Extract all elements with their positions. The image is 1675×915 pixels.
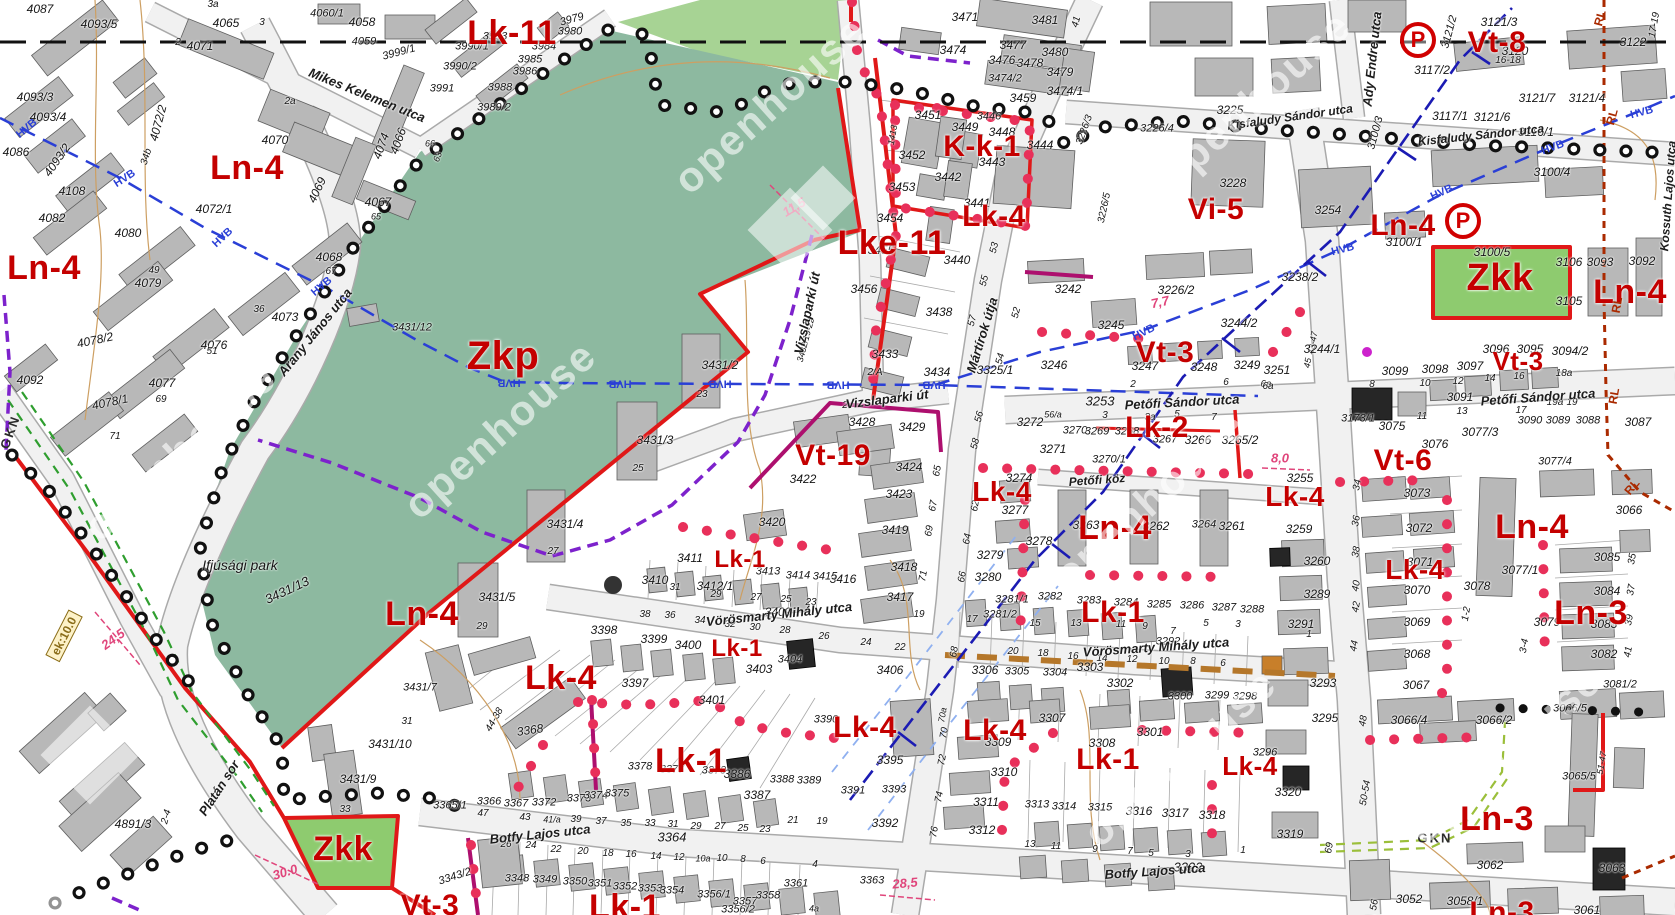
parcel-number: 29 [476,622,487,632]
parcel-number: 3279 [977,549,1004,561]
parcel-number: 3424 [896,461,923,473]
measurement-label: 24,5 [99,626,127,651]
parcel-number: 3401 [699,694,726,706]
parcel-number: 4072/1 [196,203,233,215]
parcel-number: 3121/2 [1440,14,1459,49]
parcel-number: 13 [1070,619,1081,629]
parcel-number: 3429 [899,421,926,433]
parcel-number: 3077/3 [1462,426,1499,438]
parcel-number: 31 [401,717,412,727]
parcel-number: 4891/3 [115,818,152,830]
parcel-number: 3387 [744,789,771,801]
parcel-number: 3270 [1063,426,1087,437]
parcel-number: 3077/1 [1502,564,1539,576]
parcel-number: 18a [1556,369,1573,379]
parcel-number: 3431/3 [637,434,674,446]
parcel-number: 68 [949,646,961,659]
parcel-number: 3444 [1027,139,1054,151]
zone-label: K-k-1 [943,132,1021,162]
parcel-number: 3372 [532,798,556,809]
parcel-number: 3388 [770,775,794,786]
parcel-number: 42 [1351,601,1363,614]
parcel-number: 3288 [1240,605,1264,616]
parcel-number: 41 [1071,15,1084,28]
parcel-number: 3477 [1000,39,1027,51]
zone-label: Vt-3 [1136,338,1195,368]
parcel-number: 25 [632,464,643,474]
parcel-number: 3245 [1098,319,1125,331]
parcel-number: 58 [970,437,983,450]
parcel-number: 66 [957,571,969,584]
parcel-number: 34 [694,616,705,626]
zone-label: Lk-1 [1081,598,1145,628]
utility-rl-label: RL [1610,296,1625,314]
parcel-number: 71 [109,432,120,442]
parcel-number: 3242 [1055,283,1082,295]
zone-label: Lk-1 [714,548,765,572]
zone-label: Lk-4 [1265,483,1325,511]
parcel-number: 3363 [860,876,884,887]
parcel-number: 4093/3 [17,91,54,103]
parcel-number: 3357 [733,897,757,908]
parcel-number: 3365/1 [433,801,467,812]
parcel-number: 4071 [187,40,214,52]
parcel-number: 11 [1051,842,1061,852]
parcel-number: 3286 [1180,601,1204,612]
parcel-number: 2a [284,97,295,107]
parcel-number: 3471 [952,11,979,23]
zone-label: Lk-4 [1385,556,1445,584]
parcel-number: 3991 [430,84,454,95]
parcel-number: 3261 [1219,520,1246,532]
parcel-number: 35 [1627,553,1639,566]
parcel-number: 3325/1 [977,364,1014,376]
parcel-number: 4079 [135,277,162,289]
zone-label: Ln-4 [385,597,459,631]
parcel-number: 22 [894,643,905,653]
parcel-number: 3420 [759,516,786,528]
parcel-number: 27 [547,547,558,557]
zone-label: Lke-11 [838,226,947,260]
parcel-number: 3085 [1594,551,1621,563]
parcel-number: 3400 [675,639,702,651]
parcel-number: 3078 [1464,580,1491,592]
utility-hvb-label: HVB [1330,242,1355,259]
parcel-number: 3434 [924,366,951,378]
parcel-number: 28 [779,626,790,636]
parcel-number: 56/a [1044,411,1062,420]
parcel-number: 3067 [1403,679,1430,691]
zone-label: Vt-3 [1492,348,1543,374]
parcel-number: 3062 [1477,859,1504,871]
parcel-number: 3097 [1457,360,1484,372]
parcel-number: 3069 [1404,616,1431,628]
parcel-number: 3075 [1379,420,1406,432]
zone-label: Zkp [467,336,540,376]
street-name: Botfy Lajos utca [489,822,591,845]
parcel-number: 13 [1456,407,1467,417]
utility-hvb-label: HVB [826,379,849,390]
parcel-number: 1-2 [1461,606,1473,622]
parcel-number: 4060/1 [310,9,344,20]
measurement-label: 7,7 [1150,294,1170,310]
parcel-number: 3238/2 [1282,271,1319,283]
parcel-number: 6 [1223,378,1229,388]
parcel-number: 3399 [641,633,668,645]
parcel-number: 3089 [1546,416,1570,427]
parcel-number: 3415 [813,572,837,583]
parcel-number: 34b [140,148,155,167]
parcel-number: 3364 [658,831,687,844]
parcel-number: 3317 [1162,807,1189,819]
parcel-number: 3070 [1404,584,1431,596]
street-name: Kossuth Lajos utca [1658,140,1675,251]
parcel-number: 3397 [622,677,649,689]
parcel-number: 3065/5 [1562,772,1596,783]
utility-hvb-label: HVB [708,378,731,389]
parcel-number: 66 [425,140,435,149]
parcel-number: 4093/2 [42,142,73,179]
parcel-number: 3391 [841,786,865,797]
street-name: Platán sor [196,758,241,818]
parcel-number: 3451 [915,109,942,121]
parcel-number: 70a [937,707,948,723]
parcel-number: 27 [714,822,725,832]
parcel-number: 3087 [1625,416,1652,428]
parcel-number: 3244/1 [1304,343,1341,355]
parcel-number: 4082 [39,212,66,224]
parcel-number: 3304 [1043,668,1067,679]
parcel-number: 3406 [877,664,904,676]
parcel-number: 3478 [1017,57,1044,69]
parcel-number: 3431/10 [368,738,411,750]
parking-symbol: P [1400,22,1436,58]
zone-label: Zkk [313,832,373,866]
map-labels-layer: 40874093/540653407123a40584060/140593999… [0,0,1675,915]
parcel-number: 3312 [969,824,996,836]
parcel-number: 41 [1623,646,1635,659]
parcel-number: 69 [1324,842,1336,855]
parcel-number: 40 [1351,580,1363,593]
parcel-number: 3431/5 [479,591,516,603]
parcel-number: 3a [207,0,218,10]
parcel-number: 76 [929,826,941,839]
zone-label: Vt-8 [1468,28,1527,58]
parcel-number: 4093/5 [81,18,118,30]
parcel-number: 3270/1 [1092,455,1126,466]
parcel-number: 3474 [940,44,967,56]
parcel-number: 3476 [989,54,1016,66]
parcel-number: 3253 [1086,395,1115,408]
parcel-number: 3319 [1277,828,1304,840]
parcel-number: 10 [716,854,727,864]
parcel-number: 3313 [1025,800,1049,811]
watermark-logo [0,873,82,915]
parcel-number: 16 [625,850,636,860]
utility-hvb-label: HVB [1540,139,1566,157]
parcel-number: 3306 [972,664,999,676]
zone-label: Ln-3 [1469,898,1534,915]
parcel-number: 33 [644,819,655,829]
parcel-number: 19 [913,610,924,620]
street-name: Kisfaludy Sándor utca [1417,122,1544,147]
parcel-number: 3419 [882,524,909,536]
parcel-number: 8 [740,855,746,865]
zone-label: Lk-4 [833,713,897,743]
parcel-number: 3418 [891,561,918,573]
parcel-number: 3280 [975,571,1002,583]
parcel-number: 12 [673,853,684,863]
parcel-number: 20 [577,847,588,857]
parcel-number: 3 [1102,411,1108,421]
utility-hvb-label: HVB [1629,105,1654,122]
parcel-number: 3989/2 [477,103,511,114]
parcel-number: 3305 [1005,667,1029,678]
parcel-number: 33 [339,805,350,815]
parcel-number: 67 [928,500,940,513]
parcel-number: 3300 [1168,692,1192,703]
parcel-number: 3269 [1085,427,1109,438]
parcel-number: 65 [932,465,944,478]
parcel-number: 8 [1369,380,1375,390]
utility-hvb-label: HVB [211,226,235,250]
parcel-number: 29 [710,590,721,600]
parcel-number: 3301 [1137,726,1164,738]
parcel-number: 17 [966,615,977,625]
parcel-number: 4a [809,905,819,914]
parcel-number: 3117/2 [1414,64,1450,76]
parcel-number: 3066 [1616,504,1643,516]
parcel-number: 3393 [882,785,906,796]
parcel-number: 3077/4 [1538,457,1572,468]
parcel-number: 72 [937,754,949,767]
parcel-number: 1 [1306,630,1312,640]
parcel-number: 25 [780,595,791,605]
parcel-number: 19 [816,817,827,827]
parcel-number: 3246 [1041,359,1068,371]
parcel-number: 3173/1 [1341,414,1375,425]
parcel-number: 4078/2 [76,330,114,349]
parcel-number: 3271 [1040,443,1067,455]
zone-label: Lk-2 [1125,413,1189,443]
parcel-number: 3988 [488,83,512,94]
parcel-number: 50-54 [1359,780,1373,807]
parcel-number: 3259 [1286,523,1313,535]
parcel-number: 3226/4 [1140,124,1174,135]
parcel-number: 4070 [262,134,289,146]
parcel-number: 3090 [1518,416,1542,427]
parcel-number: 3121/6 [1474,111,1511,123]
parcel-number: 3228 [1220,177,1247,189]
parcel-number: 69 [924,525,936,538]
parcel-number: 4072/2 [147,104,168,143]
zone-label: Lk-4 [972,478,1032,506]
parcel-number: 3249 [1234,359,1261,371]
parcel-number: 3307 [1039,712,1066,724]
parcel-number: 3985 [518,55,542,66]
parcel-number: 56 [1369,899,1381,912]
parcel-number: 5 [1148,849,1154,859]
parcel-number: 53 [989,241,1002,254]
parcel-number: 10 [1158,657,1169,667]
parcel-number: 4066 [388,126,408,155]
street-name: Vizslaparki út [845,387,929,410]
parcel-number: 69 [155,395,166,405]
zone-label: Ln-4 [1370,211,1435,241]
parcel-number: 3 [259,18,265,28]
zone-label: Lk-4 [1222,753,1277,779]
parcel-number: 3431/7 [403,683,437,694]
parcel-number: 3072 [1406,522,1433,534]
street-name: Petőfi köz [1068,472,1125,488]
parcel-number: 3454 [877,212,904,224]
parcel-number: 3092 [1629,255,1656,267]
parcel-number: 5 [1203,619,1209,629]
parcel-number: 7 [1127,847,1133,857]
parcel-number: 3378 [628,762,652,773]
parcel-number: 14 [650,852,661,862]
street-name: Arany János utca [276,286,354,378]
parcel-number: 3980 [558,27,582,38]
utility-rl-label: RL [1607,387,1622,405]
parcel-number: 3285 [1147,600,1171,611]
parcel-number: 3106 [1556,256,1583,268]
parcel-number: 4067 [365,196,392,208]
parcel-number: 4077 [149,377,176,389]
parcel-number: 24 [860,638,871,648]
parcel-number: 3395 [877,754,904,766]
parcel-number: 64 [962,533,974,546]
parcel-number: 27 [750,593,761,603]
parcel-number: 3431/9 [340,773,377,785]
zone-label: Lk-1 [655,744,727,778]
parcel-number: 11 [1417,412,1427,422]
parcel-number: 3310 [991,766,1018,778]
parcel-number: 10a [695,855,710,864]
parcel-number: 3367 [504,799,528,810]
parcel-number: 3295 [1312,712,1339,724]
parcel-number: 30 [749,623,760,633]
parcel-number: 3281/1 [995,595,1029,606]
zone-label: Ln-4 [1593,275,1667,309]
parcel-number: 55 [979,274,992,287]
parcel-number: 3398 [591,624,618,636]
parcel-number: 3446 [977,112,1001,123]
parcel-number: 3433 [872,348,899,360]
street-name: Petőfi Sándor utca [1480,387,1595,408]
watermark-text: openhouse [1151,3,1359,196]
parcel-number: 3282 [1038,592,1062,603]
parcel-number: 3099 [1382,365,1409,377]
parcel-number: 3100/3 [1366,115,1385,150]
parcel-number: 31 [669,583,680,593]
parcel-number: 18 [602,849,613,859]
parcel-number: 3481 [1032,14,1059,26]
parcel-number: 48 [1358,715,1370,728]
parcel-number: 3453 [889,181,916,193]
parcel-number: 4069 [306,175,328,204]
parcel-number: 3251 [1264,364,1291,376]
parcel-number: 3431/2 [702,359,739,371]
parcel-number: 3281/2 [983,610,1017,621]
parcel-number: 3990/2 [443,62,477,73]
parcel-number: 3289 [1304,588,1331,600]
zone-label: Vt-3 [401,891,460,915]
parcel-number: 3404 [778,655,802,666]
parcel-number: 3999/1 [381,43,416,62]
parcel-number: 15 [1029,619,1040,629]
map-canvas[interactable]: 40874093/540653407123a40584060/140593999… [0,0,1675,915]
parcel-number: 44-38 [484,706,505,733]
parcel-number: 12 [1452,377,1463,387]
parcel-number: 3480 [1042,46,1069,58]
watermark-logo [41,706,140,805]
parcel-number: 51 [206,347,217,357]
parcel-number: 3474/1 [1047,85,1084,97]
parcel-number: 4087 [27,3,54,15]
parcel-number: 23 [696,390,707,400]
parcel-number: 3068 [1404,648,1431,660]
parcel-number: 13 [1024,840,1035,850]
parcel-number: 3066/4 [1391,714,1428,726]
parcel-number: 3986 [513,67,537,78]
parcel-number: 29 [690,822,701,832]
parcel-number: 3366 [477,797,501,808]
parcel-number: 3302 [1107,677,1134,689]
parcel-number: 10 [1419,379,1430,389]
parcel-number: 3440 [944,254,971,266]
parcel-number: 36 [664,611,675,621]
parcel-number: 3350 [563,877,587,888]
parcel-number: 70 [939,727,951,740]
parcel-number: 2/A [867,368,882,378]
parcel-number: 63 [432,151,444,163]
parcel-number: 3314 [1052,802,1076,813]
parcel-number: 4068 [316,251,343,263]
parcel-number: 3226/3 [1075,114,1095,146]
utility-hvb-label: HVB [310,275,335,298]
parcel-number: 3431/13 [263,574,311,606]
utility-hvb-label: HVB [608,378,631,389]
zone-label: Lk-1 [589,890,661,915]
measurement-label: 8,0 [1271,452,1289,465]
parcel-number: 3052 [1396,893,1423,905]
parcel-number: 3226/5 [1097,192,1113,224]
parcel-number: 38 [639,610,650,620]
parcel-number: 2-4 [160,809,173,826]
parcel-number: 20 [1007,647,1018,657]
utility-hvb-label: HVB [112,168,137,190]
parcel-number: 51-47 [1596,751,1609,775]
parcel-number: 3320 [1275,786,1302,798]
parcel-number: 56 [974,410,987,423]
watermark-text: openhouse [666,8,874,201]
parcel-number: 4073 [272,311,299,323]
parcel-number: 3354 [660,886,684,897]
zone-label: Lk-4 [963,716,1027,746]
parcel-number: 4059 [352,37,376,48]
parcel-number: 49 [148,266,159,276]
parcel-number: 3 [1235,620,1241,630]
parcel-number: 4078/1 [91,392,129,411]
parcel-number: 3431/4 [547,518,584,530]
parcel-number: 3117/1 [1432,110,1468,122]
parcel-number: 3410 [642,574,669,586]
parcel-number: 6 [1220,659,1226,669]
utility-hvb-label: HVB [15,117,40,140]
parcel-number: 3386 [724,768,751,780]
zone-label: Vt-6 [1374,446,1433,476]
